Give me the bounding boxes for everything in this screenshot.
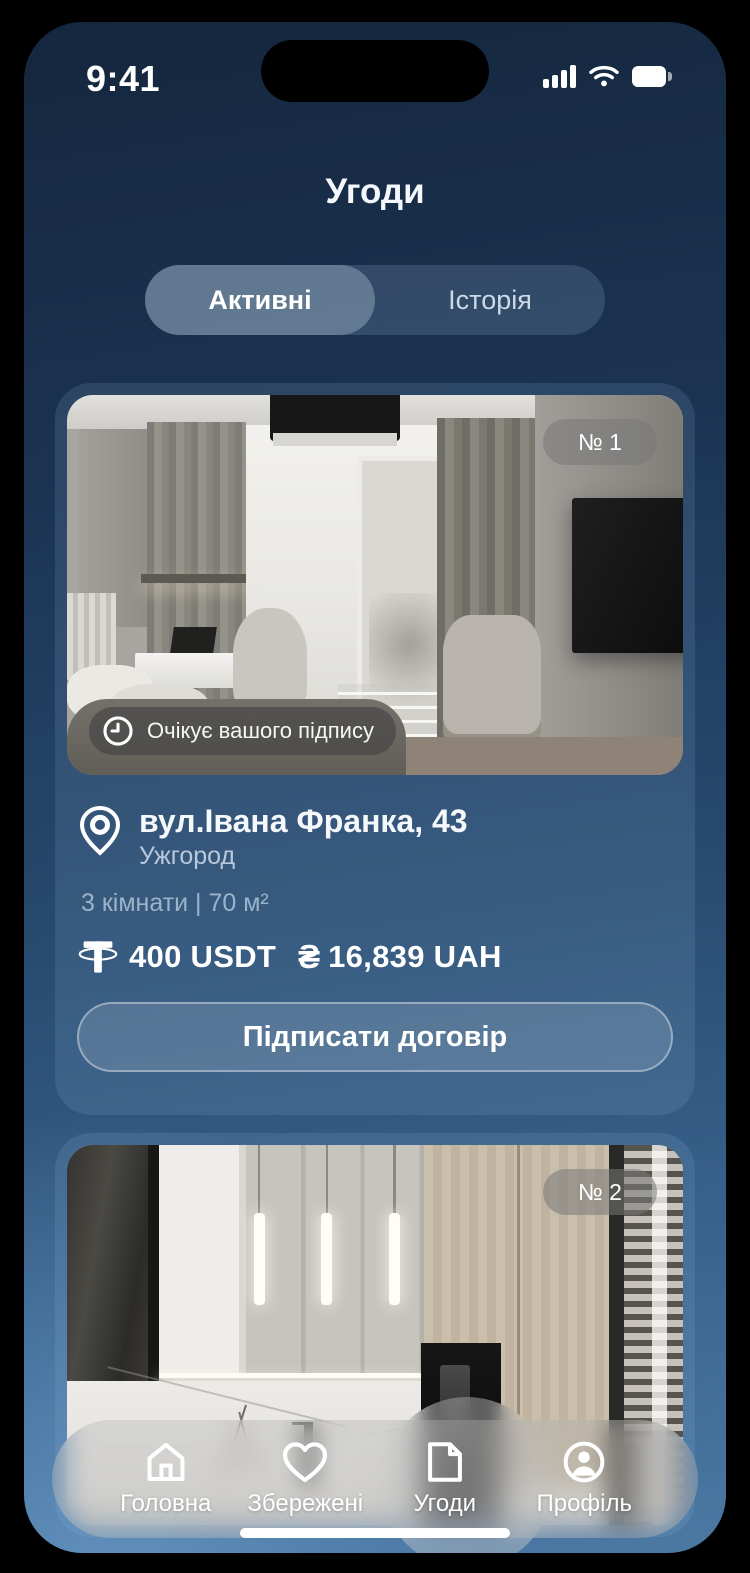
nav-label: Збережені (247, 1490, 363, 1518)
photo-art (389, 1213, 400, 1304)
nav-item-saved[interactable]: Збережені (236, 1440, 376, 1518)
clock-time: 9:41 (86, 58, 160, 100)
battery-icon (632, 66, 672, 87)
price-row: 400 USDT ₴ 16,839 UAH (77, 938, 683, 976)
deal-card-1[interactable]: № 1 Очікує вашого підпису вул.Івана Фран… (55, 383, 695, 1115)
price-uah: 16,839 UAH (328, 939, 502, 975)
app-screen: 9:41 Угоди Активні Історія (24, 22, 726, 1553)
nav-bar: Головна Збережені Угоди (52, 1420, 698, 1538)
document-icon (424, 1440, 466, 1484)
tab-active[interactable]: Активні (145, 265, 375, 335)
nav-label: Профіль (536, 1490, 632, 1518)
status-bar: 9:41 (24, 22, 726, 132)
tether-icon (77, 939, 119, 975)
photo-art (148, 1145, 159, 1381)
nav-item-home[interactable]: Головна (96, 1440, 236, 1518)
property-photo-bedroom: № 1 Очікує вашого підпису (67, 395, 683, 775)
photo-art (159, 1373, 424, 1378)
deal-details: 3 кімнати | 70 м² (81, 889, 683, 918)
location-pin-icon (77, 803, 123, 859)
clock-icon (101, 714, 135, 748)
photo-art (326, 1145, 328, 1213)
address-texts: вул.Івана Франка, 43 Ужгород (139, 803, 468, 871)
dynamic-island (261, 40, 489, 102)
phone-mockup: 9:41 Угоди Активні Історія (0, 0, 750, 1573)
deal-address: вул.Івана Франка, 43 (139, 803, 468, 839)
photo-art (406, 737, 683, 775)
price-usdt: 400 USDT (129, 939, 276, 975)
photo-art (321, 1213, 332, 1304)
deals-tabs: Активні Історія (145, 265, 605, 335)
photo-art-tv (572, 498, 683, 654)
deal-number-badge: № 2 (543, 1169, 657, 1215)
deal-status-text: Очікує вашого підпису (147, 718, 374, 744)
deal-number-badge: № 1 (543, 419, 657, 465)
photo-art (170, 627, 217, 654)
photo-art (141, 574, 246, 584)
tab-history[interactable]: Історія (375, 265, 605, 335)
deal-status-pill: Очікує вашого підпису (89, 707, 396, 755)
photo-art (233, 608, 307, 711)
photo-art (443, 615, 542, 748)
home-indicator[interactable] (240, 1528, 510, 1538)
photo-art (273, 433, 396, 446)
heart-icon (281, 1440, 329, 1484)
wifi-icon (588, 64, 620, 88)
profile-icon (561, 1440, 607, 1484)
cellular-signal-icon (543, 64, 576, 88)
deal-city: Ужгород (139, 842, 468, 871)
nav-label: Головна (120, 1490, 211, 1518)
hryvnia-icon: ₴ (298, 938, 320, 976)
home-icon (143, 1440, 189, 1484)
photo-art (258, 1145, 260, 1213)
nav-item-profile[interactable]: Профіль (515, 1440, 655, 1518)
sign-contract-button[interactable]: Підписати договір (77, 1002, 673, 1072)
nav-label: Угоди (413, 1490, 476, 1518)
photo-art (159, 1145, 245, 1373)
photo-art (393, 1145, 395, 1213)
status-icons (543, 64, 672, 88)
address-row: вул.Івана Франка, 43 Ужгород (77, 803, 683, 871)
photo-art (67, 1145, 159, 1381)
photo-art (254, 1213, 265, 1304)
page-title: Угоди (24, 172, 726, 212)
nav-item-deals[interactable]: Угоди (375, 1440, 515, 1518)
